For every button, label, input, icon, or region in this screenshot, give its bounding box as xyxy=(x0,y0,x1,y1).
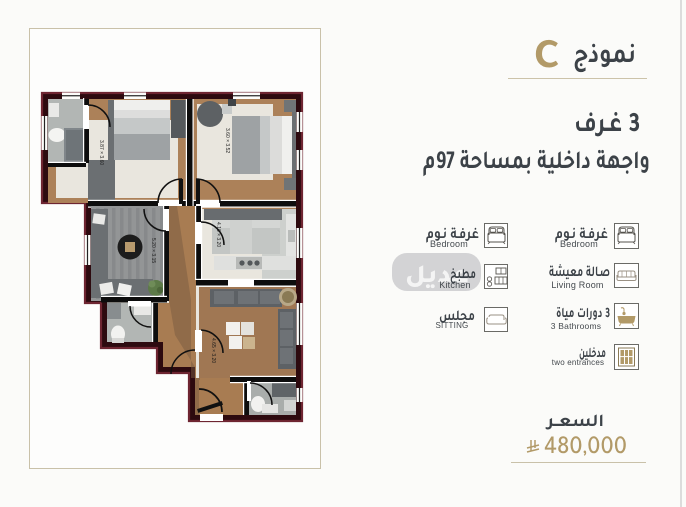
svg-text:3.60 × 3.52: 3.60 × 3.52 xyxy=(224,128,230,153)
svg-text:3.87 × 3.60: 3.87 × 3.60 xyxy=(98,140,104,165)
svg-text:4.10 × 3.20: 4.10 × 3.20 xyxy=(215,222,221,247)
svg-text:5.20 × 3.15: 5.20 × 3.15 xyxy=(150,238,156,263)
svg-text:4.65 × 3.20: 4.65 × 3.20 xyxy=(210,338,216,363)
